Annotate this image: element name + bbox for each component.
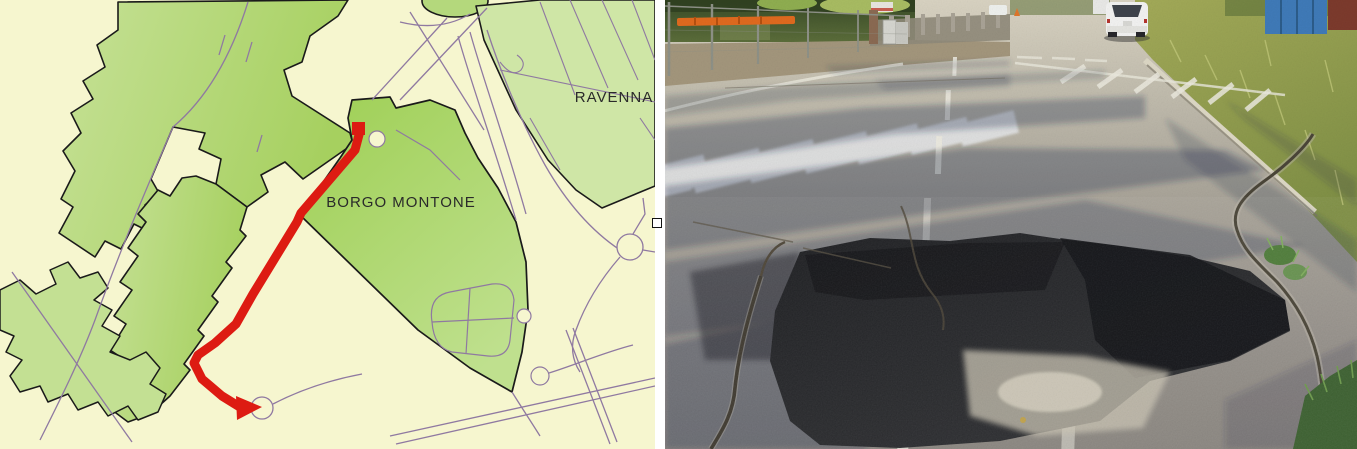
map-label-ravenna: RAVENNA bbox=[575, 89, 653, 106]
white-car bbox=[1106, 2, 1148, 37]
car-wheel-left bbox=[1108, 32, 1117, 37]
selection-handle bbox=[652, 218, 662, 228]
photo-canvas bbox=[665, 0, 1357, 449]
asphalt-texture-light bbox=[665, 220, 1357, 449]
map-and-photo-figure: RAVENNA BORGO MONTONE bbox=[0, 0, 1357, 449]
blue-container bbox=[1265, 0, 1327, 34]
map-label-borgo-montone: BORGO MONTONE bbox=[326, 194, 475, 211]
car-taillight-right bbox=[1144, 19, 1147, 23]
car-wheel-right bbox=[1136, 32, 1145, 37]
map-canvas: RAVENNA BORGO MONTONE bbox=[0, 0, 655, 449]
road-photo bbox=[665, 0, 1357, 449]
roundabout-route-start bbox=[369, 131, 385, 147]
route-start-marker bbox=[352, 122, 365, 135]
distant-car bbox=[989, 5, 1007, 15]
location-map: RAVENNA BORGO MONTONE bbox=[0, 0, 655, 449]
car-taillight-left bbox=[1107, 19, 1110, 23]
car-bumper bbox=[1107, 26, 1147, 33]
car-plate bbox=[1123, 21, 1132, 26]
roundabout-small-east bbox=[517, 309, 531, 323]
roundabout-large-east bbox=[617, 234, 643, 260]
roundabout-small-south bbox=[531, 367, 549, 385]
red-structure bbox=[1328, 0, 1357, 30]
car-rear-window bbox=[1112, 5, 1142, 17]
